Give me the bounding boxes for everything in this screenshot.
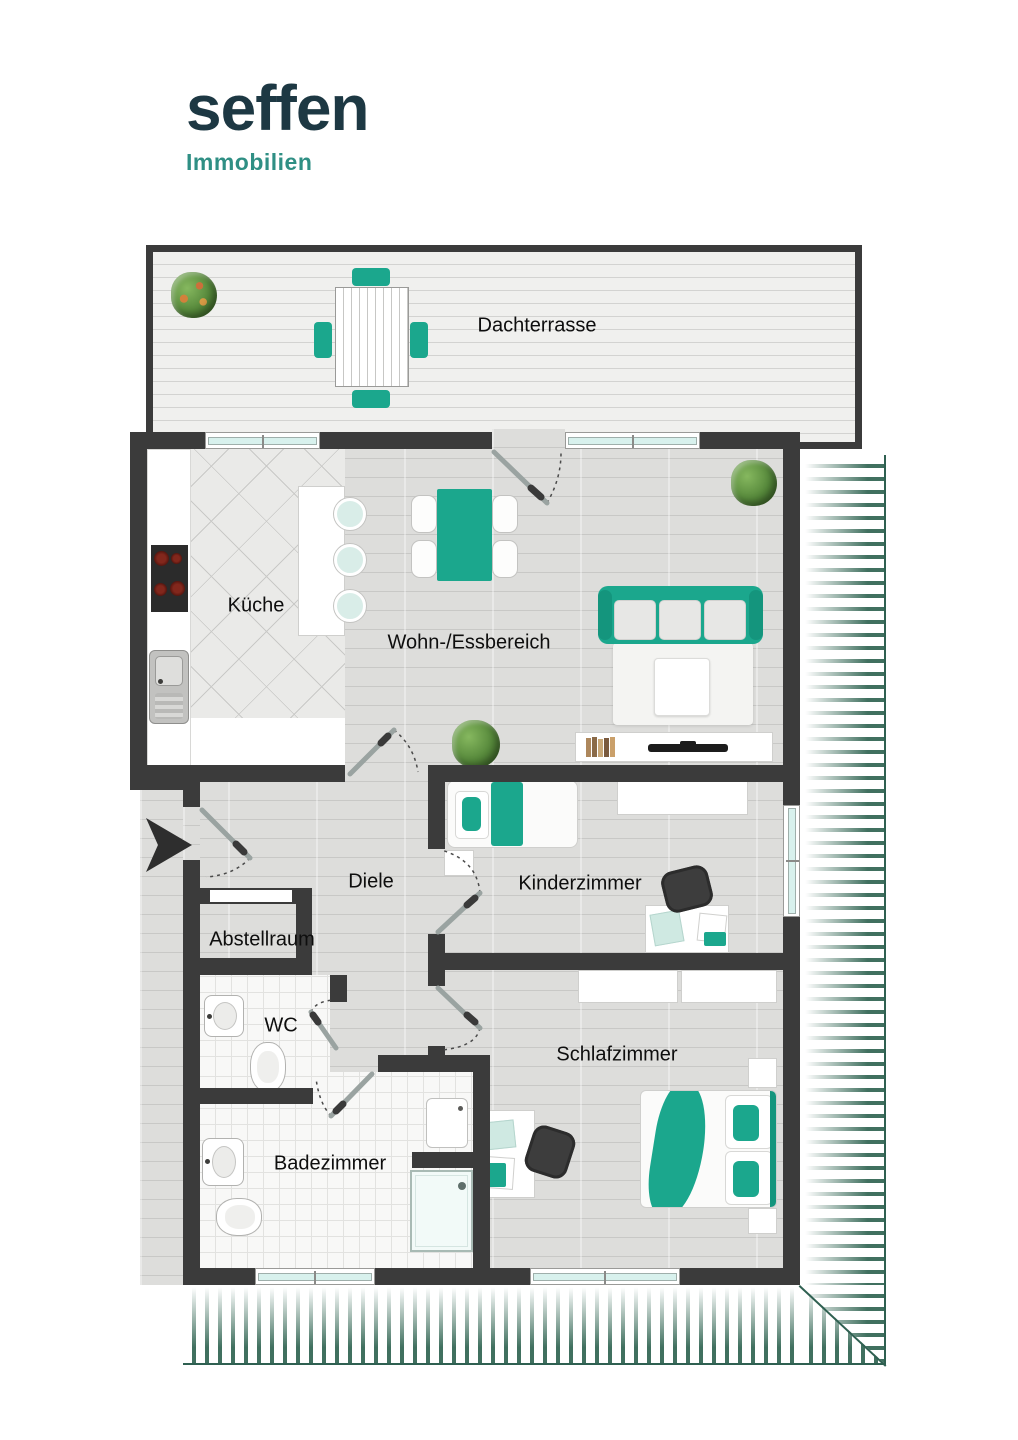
desk: [645, 905, 729, 953]
terrace-door-threshold: [492, 429, 565, 449]
plant-icon: [171, 272, 217, 318]
wall: [375, 1268, 530, 1285]
room-label-abstellraum: Abstellraum: [209, 929, 315, 952]
window: [205, 432, 320, 449]
wall: [183, 958, 312, 975]
nightstand: [748, 1208, 777, 1234]
bar-stool: [334, 498, 366, 530]
wall: [320, 432, 492, 449]
dining-chair: [492, 495, 518, 533]
terrace-table: [335, 287, 409, 387]
room-label-wohnessbereich: Wohn-/Essbereich: [387, 632, 550, 655]
wall: [700, 432, 800, 449]
dining-chair: [411, 495, 437, 533]
bed-double: [640, 1090, 777, 1208]
bed-single: [447, 780, 578, 848]
floor-plan-canvas: seffen Immobilien: [0, 0, 1018, 1440]
wall: [378, 1055, 490, 1072]
room-label-schlafzimmer: Schlafzimmer: [556, 1044, 677, 1067]
hatch-border: [183, 1363, 886, 1365]
wall: [147, 765, 345, 782]
dining-table: [437, 489, 492, 581]
kitchen-sink-icon: [149, 650, 189, 724]
roof-slope-hatch-corner: [800, 1285, 886, 1365]
nightstand: [444, 850, 474, 876]
room-label-wc: WC: [264, 1015, 297, 1038]
sofa: [598, 586, 763, 644]
hatch-border: [884, 455, 886, 1365]
bar-stool: [334, 590, 366, 622]
room-label-diele: Diele: [348, 871, 394, 894]
bar-stool: [334, 544, 366, 576]
wardrobe: [681, 970, 777, 1003]
wall: [680, 1268, 800, 1285]
toilet-icon: [250, 1042, 286, 1092]
entrance-threshold: [183, 807, 200, 860]
terrace-chair: [352, 390, 390, 408]
roof-slope-hatch-bottom: [183, 1285, 800, 1365]
stove-icon: [151, 545, 188, 612]
terrace-chair: [314, 322, 332, 358]
shower-icon: [410, 1170, 473, 1252]
kitchen-base: [188, 718, 345, 765]
dining-chair: [492, 540, 518, 578]
nightstand: [748, 1058, 777, 1088]
roof-slope-hatch-right: [803, 455, 886, 1285]
sink-icon: [202, 1138, 244, 1186]
wall: [130, 432, 205, 449]
washing-machine-icon: [426, 1098, 468, 1148]
room-label-badezimmer: Badezimmer: [274, 1153, 386, 1176]
terrace-chair: [352, 268, 390, 286]
wall: [183, 790, 200, 807]
wall: [428, 934, 445, 986]
plant-icon: [731, 460, 777, 506]
wall: [183, 860, 200, 1285]
wall: [183, 1088, 313, 1104]
wall: [330, 975, 347, 1002]
wall: [412, 1152, 473, 1168]
window: [255, 1268, 375, 1285]
room-dachterrasse: [146, 245, 862, 449]
room-label-kinderzimmer: Kinderzimmer: [518, 873, 641, 896]
room-label-kueche: Küche: [228, 595, 285, 618]
brand-subtitle: Immobilien: [186, 149, 369, 176]
wardrobe: [578, 970, 678, 1003]
wall: [783, 449, 800, 805]
wall: [783, 917, 800, 1285]
plant-icon: [452, 720, 500, 768]
brand-logo: seffen Immobilien: [186, 76, 369, 176]
brand-name: seffen: [186, 76, 369, 140]
toilet-icon: [216, 1198, 262, 1236]
wall: [428, 782, 445, 849]
window: [565, 432, 700, 449]
wall: [130, 449, 147, 790]
tv-sideboard: [575, 732, 773, 762]
wall: [445, 953, 783, 970]
wardrobe: [617, 780, 748, 815]
sink-icon: [204, 995, 244, 1037]
room-label-dachterrasse: Dachterrasse: [478, 315, 597, 338]
window: [530, 1268, 680, 1285]
storage-door: [210, 890, 292, 902]
wall: [428, 765, 800, 782]
wall: [473, 1072, 490, 1285]
coffee-table: [654, 658, 710, 716]
window: [783, 805, 800, 917]
terrace-chair: [410, 322, 428, 358]
dining-chair: [411, 540, 437, 578]
